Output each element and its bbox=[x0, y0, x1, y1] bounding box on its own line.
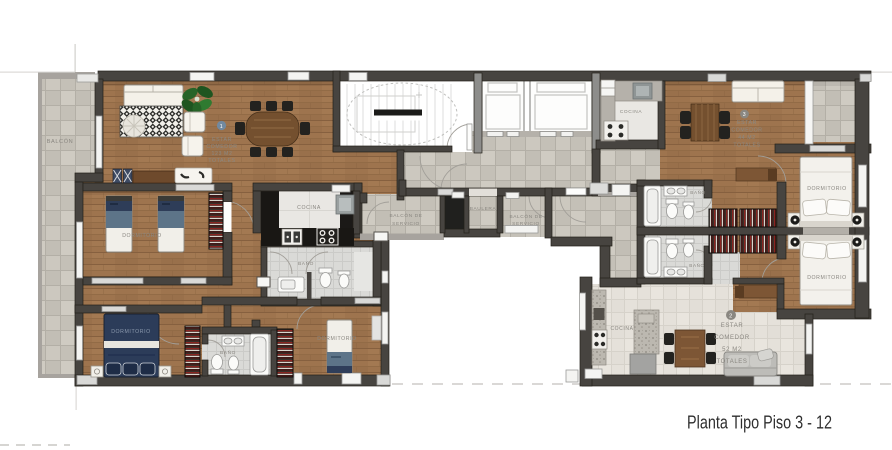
svg-text:BALCÓN DE: BALCÓN DE bbox=[509, 213, 542, 220]
svg-text:ESTAR: ESTAR bbox=[721, 323, 744, 329]
svg-text:52 M2: 52 M2 bbox=[722, 347, 742, 353]
svg-text:DORMITORIO: DORMITORIO bbox=[317, 336, 357, 342]
svg-text:BAULERA: BAULERA bbox=[470, 206, 497, 212]
svg-text:ESTAR: ESTAR bbox=[737, 120, 757, 126]
svg-text:BAÑO: BAÑO bbox=[220, 349, 236, 356]
svg-text:SERVICIO: SERVICIO bbox=[512, 221, 540, 227]
svg-text:TOTALES: TOTALES bbox=[208, 158, 235, 164]
svg-text:DORMITORIO: DORMITORIO bbox=[807, 275, 847, 281]
svg-text:COMEDOR: COMEDOR bbox=[206, 144, 237, 150]
svg-text:BALCÓN: BALCÓN bbox=[47, 138, 74, 145]
svg-text:SERVICIO: SERVICIO bbox=[392, 221, 420, 227]
svg-text:COCINA: COCINA bbox=[610, 326, 633, 332]
svg-text:1: 1 bbox=[220, 124, 224, 130]
svg-text:COCINA: COCINA bbox=[297, 205, 321, 211]
svg-text:TOTALES: TOTALES bbox=[733, 143, 760, 149]
svg-text:TOTALES: TOTALES bbox=[717, 359, 748, 365]
svg-text:BAÑO: BAÑO bbox=[298, 260, 314, 267]
svg-text:COMEDOR: COMEDOR bbox=[714, 335, 750, 341]
svg-text:DORMITORIO: DORMITORIO bbox=[111, 329, 151, 335]
svg-text:BAÑO: BAÑO bbox=[690, 189, 705, 195]
svg-text:3: 3 bbox=[743, 112, 747, 118]
svg-text:123 M2: 123 M2 bbox=[212, 151, 233, 157]
svg-text:BALCÓN DE: BALCÓN DE bbox=[389, 212, 422, 219]
svg-text:DORMITORIO: DORMITORIO bbox=[807, 186, 847, 192]
svg-text:2: 2 bbox=[729, 313, 733, 319]
svg-text:44 M2: 44 M2 bbox=[738, 135, 755, 141]
svg-text:DORMITORIO: DORMITORIO bbox=[122, 233, 162, 239]
svg-text:COCINA: COCINA bbox=[620, 109, 642, 115]
svg-text:Planta Tipo Piso 3 - 12: Planta Tipo Piso 3 - 12 bbox=[687, 412, 832, 433]
svg-text:ESTAR: ESTAR bbox=[212, 137, 232, 143]
svg-text:COMEDOR: COMEDOR bbox=[731, 128, 762, 134]
svg-text:BAÑO: BAÑO bbox=[689, 262, 704, 268]
